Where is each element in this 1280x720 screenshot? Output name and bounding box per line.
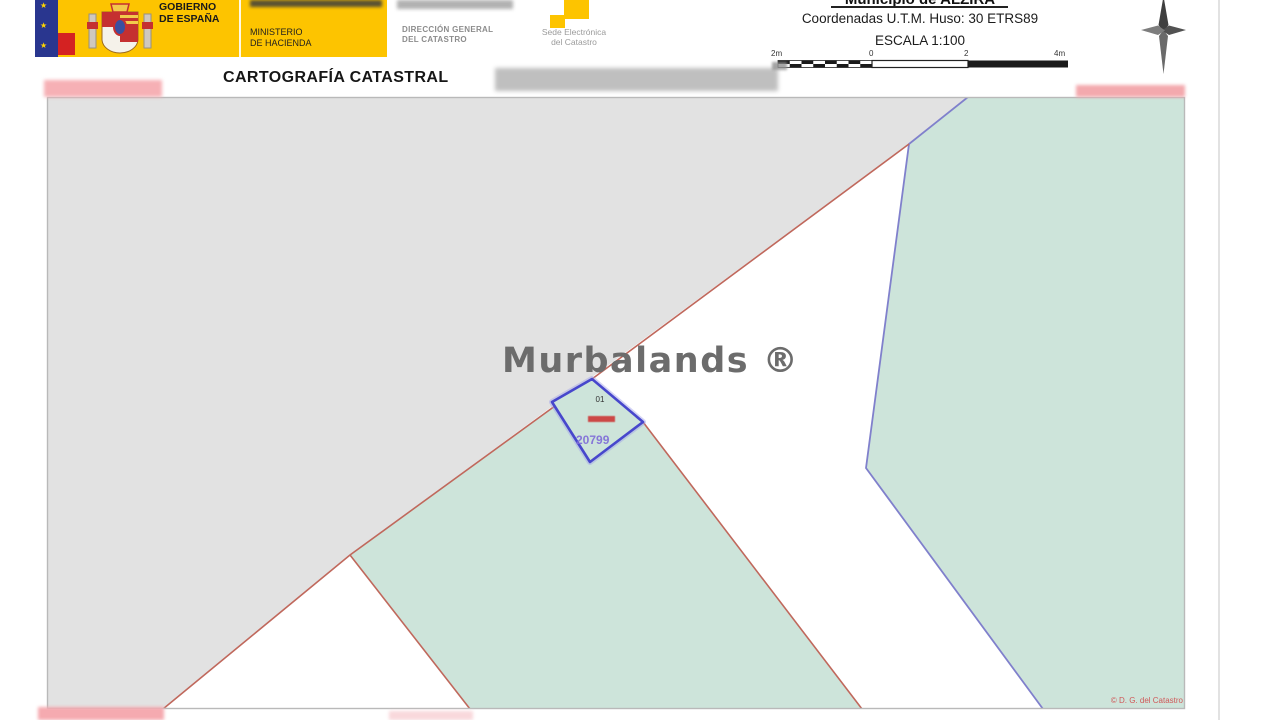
spain-flag-red [58,33,75,55]
scalebar-tick-label: 4m [1054,49,1065,58]
sede-electronica-label: Sede Electrónica del Catastro [524,27,624,47]
utm-coordinates-label: Coordenadas U.T.M. Huso: 30 ETRS89 [790,11,1050,26]
scalebar [770,58,1076,72]
redacted-coordinate-label [1076,85,1185,97]
scalebar-tick-label: 2 [964,49,968,58]
redacted-coordinate-label [38,707,164,720]
star-icon: ★ [40,42,47,50]
parcel-number-label: 20799 [576,433,610,447]
redacted-coordinate-label [389,711,473,720]
sede-electronica-icon [564,0,589,19]
star-icon: ★ [40,2,47,10]
page-title: CARTOGRAFÍA CATASTRAL [223,69,449,87]
redacted-reference-mark [772,62,787,70]
direccion-general-label: DIRECCIÓN GENERAL DEL CATASTRO [402,25,493,44]
government-banner: ★ ★ ★ GOBIERNO DE ESPAÑA MINISTERIO DE H… [35,0,387,57]
watermark: Murbalands ® [502,341,799,381]
redacted-reference-bar [495,68,778,91]
redacted-subheader-text [397,0,513,9]
redacted-coordinate-label [44,80,162,97]
ministry-label: MINISTERIO DE HACIENDA [250,27,312,49]
municipality-underline [831,6,1008,8]
scalebar-tick-label: 0 [869,49,873,58]
copyright-text: © D. G. del Catastro [1111,696,1184,705]
compass-rose-icon [1130,0,1200,80]
government-label: GOBIERNO DE ESPAÑA [159,1,219,25]
redacted-reference [588,416,615,422]
star-icon: ★ [40,22,47,30]
eu-spain-flag: ★ ★ ★ [35,0,58,57]
page-right-edge [1218,0,1220,720]
redacted-header-text [250,0,382,7]
scalebar-tick-label: 2m [771,49,782,58]
subparcel-label: 01 [596,395,605,404]
scale-label: ESCALA 1:100 [845,33,995,48]
spain-coat-of-arms [85,2,155,57]
banner-divider [239,0,241,57]
